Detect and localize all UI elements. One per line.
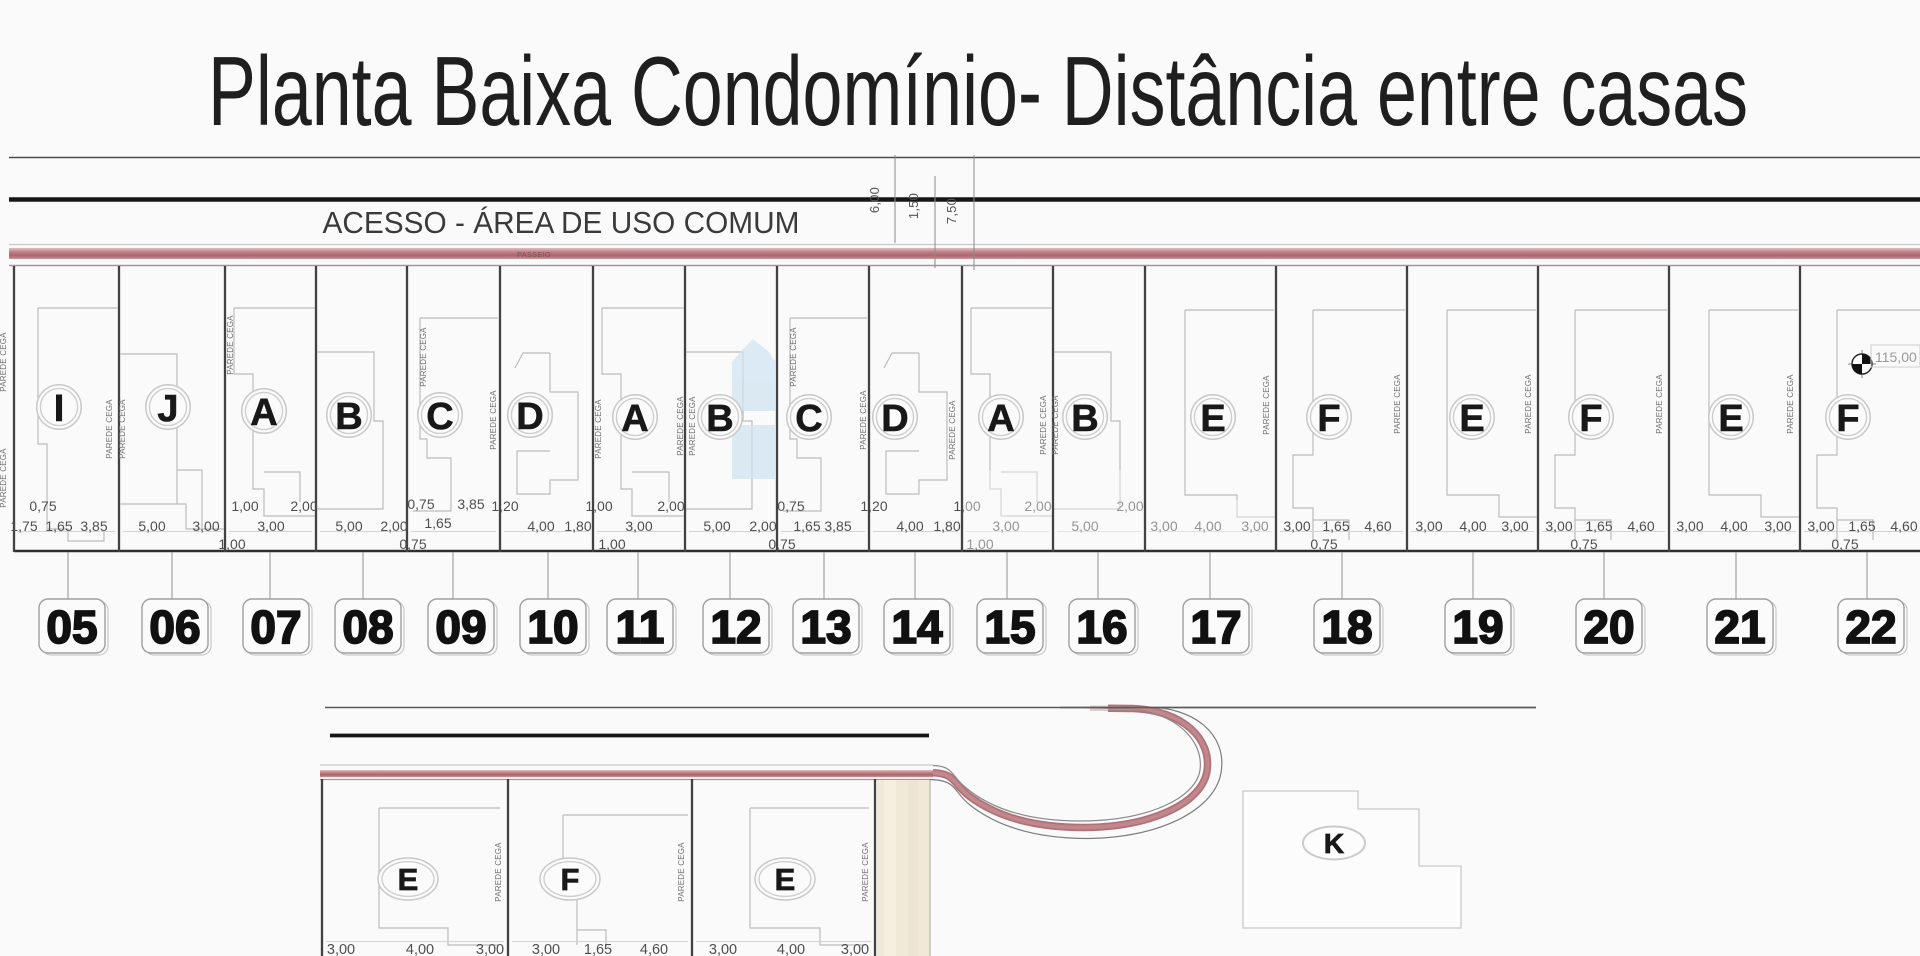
svg-text:19: 19 (1452, 601, 1503, 653)
svg-text:PAREDE CEGA: PAREDE CEGA (489, 390, 498, 450)
svg-text:3,00: 3,00 (1764, 518, 1791, 534)
svg-text:10: 10 (527, 601, 578, 653)
svg-text:4,00: 4,00 (777, 942, 805, 956)
svg-text:PAREDE CEGA: PAREDE CEGA (1051, 395, 1060, 455)
svg-text:5,00: 5,00 (703, 518, 730, 534)
svg-text:PAREDE CEGA: PAREDE CEGA (789, 327, 798, 387)
svg-text:1,20: 1,20 (491, 498, 518, 514)
svg-text:3,00: 3,00 (841, 942, 869, 956)
svg-text:E: E (1459, 398, 1484, 440)
svg-text:B: B (335, 396, 362, 438)
svg-text:PASSEIO: PASSEIO (517, 250, 551, 259)
svg-text:1,75: 1,75 (10, 518, 37, 534)
svg-text:D: D (516, 396, 543, 438)
svg-text:1,00: 1,00 (218, 536, 245, 552)
svg-text:0,75: 0,75 (777, 498, 804, 514)
svg-text:3,00: 3,00 (1283, 518, 1310, 534)
svg-text:4,00: 4,00 (1459, 518, 1486, 534)
svg-text:4,60: 4,60 (1627, 518, 1654, 534)
svg-text:2,00: 2,00 (657, 498, 684, 514)
svg-text:1,00: 1,00 (598, 536, 625, 552)
svg-text:E: E (1718, 398, 1743, 440)
svg-text:I: I (54, 388, 65, 430)
svg-text:09: 09 (435, 601, 486, 653)
svg-text:14: 14 (891, 601, 943, 653)
svg-text:5,00: 5,00 (335, 518, 362, 534)
svg-text:PAREDE CEGA: PAREDE CEGA (677, 842, 686, 902)
svg-text:1,00: 1,00 (585, 498, 612, 514)
svg-text:1,20: 1,20 (860, 498, 887, 514)
svg-text:PAREDE CEGA: PAREDE CEGA (1786, 374, 1795, 434)
svg-text:3,00: 3,00 (257, 518, 284, 534)
svg-text:1,65: 1,65 (793, 518, 820, 534)
svg-text:08: 08 (342, 601, 393, 653)
svg-text:PAREDE CEGA: PAREDE CEGA (1393, 374, 1402, 434)
svg-text:F: F (1579, 398, 1602, 440)
svg-text:PAREDE CEGA: PAREDE CEGA (0, 448, 8, 508)
svg-text:PAREDE CEGA: PAREDE CEGA (594, 399, 603, 459)
svg-text:3,00: 3,00 (327, 942, 355, 956)
svg-text:PAREDE CEGA: PAREDE CEGA (676, 396, 685, 456)
svg-text:A: A (621, 398, 648, 440)
svg-text:3,00: 3,00 (1807, 518, 1834, 534)
svg-text:F: F (1317, 398, 1340, 440)
svg-text:3,00: 3,00 (1415, 518, 1442, 534)
svg-text:3,00: 3,00 (625, 518, 652, 534)
svg-text:PAREDE CEGA: PAREDE CEGA (226, 315, 235, 375)
svg-text:17: 17 (1190, 601, 1241, 653)
svg-text:21: 21 (1714, 601, 1765, 653)
svg-text:C: C (426, 396, 453, 438)
svg-text:4,60: 4,60 (1890, 518, 1917, 534)
svg-text:3,00: 3,00 (1545, 518, 1572, 534)
svg-text:E: E (398, 862, 419, 897)
svg-text:A: A (987, 398, 1014, 440)
svg-text:B: B (1071, 398, 1098, 440)
svg-text:D: D (881, 398, 908, 440)
svg-text:PAREDE CEGA: PAREDE CEGA (1039, 395, 1048, 455)
svg-text:3,00: 3,00 (476, 942, 504, 956)
svg-text:05: 05 (46, 601, 97, 653)
svg-text:3,85: 3,85 (457, 496, 484, 512)
svg-text:7,50: 7,50 (944, 198, 959, 224)
svg-text:PAREDE CEGA: PAREDE CEGA (105, 399, 114, 459)
svg-text:06: 06 (149, 601, 200, 653)
svg-text:E: E (1200, 398, 1225, 440)
svg-text:PAREDE CEGA: PAREDE CEGA (1524, 374, 1533, 434)
svg-text:3,00: 3,00 (532, 942, 560, 956)
svg-text:11: 11 (616, 601, 665, 653)
svg-text:3,85: 3,85 (824, 518, 851, 534)
svg-text:1,80: 1,80 (933, 518, 960, 534)
svg-text:3,85: 3,85 (80, 518, 107, 534)
svg-text:1,65: 1,65 (424, 515, 451, 531)
svg-text:1,00: 1,00 (231, 498, 258, 514)
svg-text:A: A (250, 392, 277, 434)
svg-text:2,00: 2,00 (749, 518, 776, 534)
svg-text:J: J (157, 388, 178, 430)
svg-text:PAREDE CEGA: PAREDE CEGA (859, 390, 868, 450)
svg-text:C: C (795, 398, 822, 440)
svg-text:PAREDE CEGA: PAREDE CEGA (419, 327, 428, 387)
svg-text:15: 15 (984, 601, 1035, 653)
svg-text:F: F (561, 862, 580, 897)
svg-text:0,75: 0,75 (768, 536, 795, 552)
svg-text:22: 22 (1845, 601, 1896, 653)
svg-text:0,75: 0,75 (1831, 536, 1858, 552)
svg-text:1,80: 1,80 (564, 518, 591, 534)
svg-text:13: 13 (800, 601, 851, 653)
svg-text:20: 20 (1583, 601, 1634, 653)
svg-text:3,00: 3,00 (1501, 518, 1528, 534)
svg-text:4,00: 4,00 (406, 942, 434, 956)
svg-text:5,00: 5,00 (138, 518, 165, 534)
svg-text:4,60: 4,60 (640, 942, 668, 956)
svg-text:PAREDE CEGA: PAREDE CEGA (948, 400, 957, 460)
svg-text:Planta Baixa Condomínio- Distâ: Planta Baixa Condomínio- Distância entre… (208, 36, 1748, 146)
svg-text:12: 12 (710, 601, 761, 653)
svg-text:1,65: 1,65 (1848, 518, 1875, 534)
svg-text:0,75: 0,75 (1310, 536, 1337, 552)
svg-text:1,50: 1,50 (906, 193, 921, 219)
svg-text:ACESSO - ÁREA DE USO COMUM: ACESSO - ÁREA DE USO COMUM (323, 205, 800, 240)
svg-text:F: F (1836, 398, 1859, 440)
svg-text:4,00: 4,00 (1720, 518, 1747, 534)
svg-text:3,00: 3,00 (1676, 518, 1703, 534)
svg-text:PAREDE CEGA: PAREDE CEGA (118, 399, 127, 459)
svg-text:PAREDE CEGA: PAREDE CEGA (861, 842, 870, 902)
svg-text:1,65: 1,65 (1585, 518, 1612, 534)
svg-text:2,00: 2,00 (290, 498, 317, 514)
svg-text:1,65: 1,65 (1322, 518, 1349, 534)
svg-text:0,75: 0,75 (1570, 536, 1597, 552)
svg-text:PAREDE CEGA: PAREDE CEGA (0, 332, 8, 392)
svg-text:3,00: 3,00 (192, 518, 219, 534)
svg-text:2,00: 2,00 (380, 518, 407, 534)
svg-text:B: B (706, 398, 733, 440)
svg-text:PAREDE CEGA: PAREDE CEGA (688, 396, 697, 456)
svg-text:0,75: 0,75 (29, 498, 56, 514)
svg-text:115,00: 115,00 (1875, 349, 1917, 365)
svg-text:K: K (1324, 828, 1344, 859)
svg-text:PAREDE CEGA: PAREDE CEGA (494, 842, 503, 902)
svg-text:6,00: 6,00 (867, 187, 882, 213)
svg-text:1,65: 1,65 (584, 942, 612, 956)
svg-text:4,60: 4,60 (1364, 518, 1391, 534)
svg-text:4,00: 4,00 (896, 518, 923, 534)
svg-text:1,65: 1,65 (45, 518, 72, 534)
svg-text:3,00: 3,00 (709, 942, 737, 956)
svg-text:E: E (775, 862, 796, 897)
svg-text:0,75: 0,75 (407, 496, 434, 512)
svg-text:PAREDE CEGA: PAREDE CEGA (1262, 375, 1271, 435)
svg-text:4,00: 4,00 (527, 518, 554, 534)
svg-text:PAREDE CEGA: PAREDE CEGA (1655, 374, 1664, 434)
svg-text:07: 07 (250, 601, 301, 653)
svg-text:0,75: 0,75 (399, 536, 426, 552)
svg-text:16: 16 (1076, 601, 1127, 653)
svg-text:18: 18 (1321, 601, 1372, 653)
